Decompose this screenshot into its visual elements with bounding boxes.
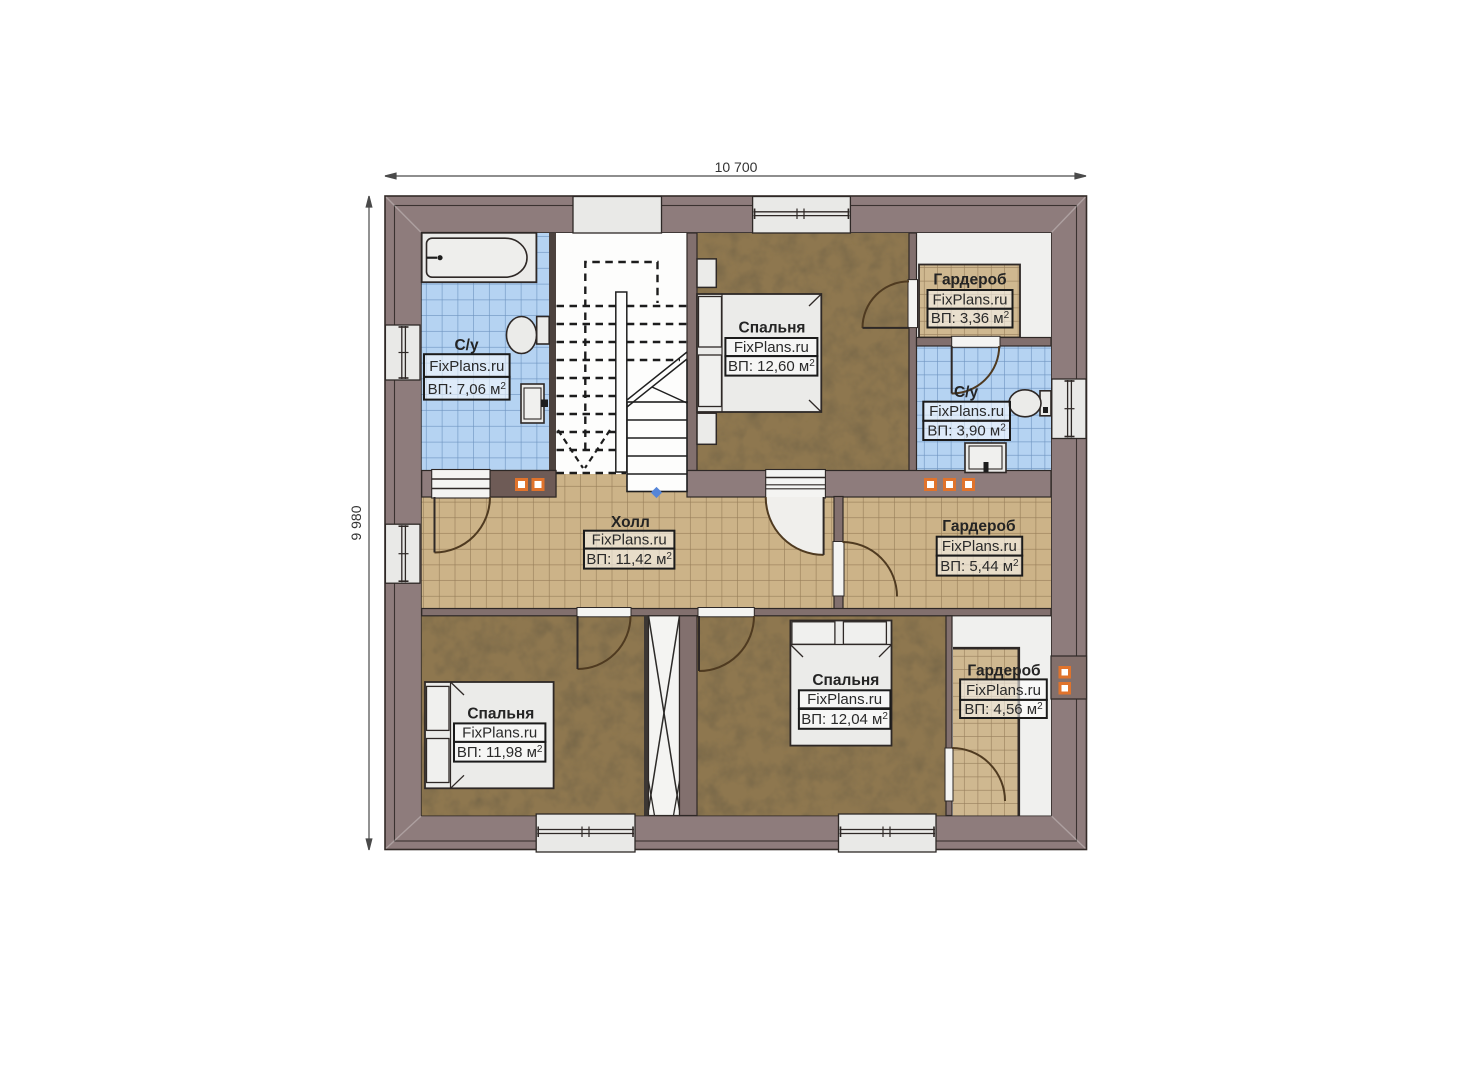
svg-text:FixPlans.ru: FixPlans.ru [429,358,504,375]
svg-text:ВП: 3,36 м2: ВП: 3,36 м2 [931,310,1010,327]
svg-text:ВП: 5,44 м2: ВП: 5,44 м2 [940,558,1019,575]
svg-text:С/у: С/у [954,384,979,401]
svg-text:10 700: 10 700 [715,159,758,175]
svg-text:Гардероб: Гардероб [942,518,1015,535]
svg-text:ВП: 4,56 м2: ВП: 4,56 м2 [964,701,1043,718]
svg-text:ВП: 3,90 м2: ВП: 3,90 м2 [927,422,1006,439]
svg-text:ВП: 12,60 м2: ВП: 12,60 м2 [728,358,815,375]
svg-text:FixPlans.ru: FixPlans.ru [932,291,1007,308]
svg-text:Гардероб: Гардероб [933,272,1006,289]
svg-text:FixPlans.ru: FixPlans.ru [734,339,809,356]
svg-text:Спальня: Спальня [467,706,534,723]
svg-text:FixPlans.ru: FixPlans.ru [966,682,1041,699]
svg-text:FixPlans.ru: FixPlans.ru [929,403,1004,420]
svg-text:FixPlans.ru: FixPlans.ru [462,725,537,742]
svg-text:Спальня: Спальня [739,320,806,337]
svg-text:FixPlans.ru: FixPlans.ru [592,532,667,549]
svg-text:Холл: Холл [611,514,650,531]
svg-text:С/у: С/у [454,337,479,354]
svg-text:FixPlans.ru: FixPlans.ru [807,691,882,708]
svg-text:ВП: 11,98 м2: ВП: 11,98 м2 [457,744,543,761]
svg-text:9 980: 9 980 [348,505,364,540]
svg-text:FixPlans.ru: FixPlans.ru [942,538,1017,555]
svg-text:ВП: 11,42 м2: ВП: 11,42 м2 [586,551,672,568]
svg-text:Гардероб: Гардероб [967,663,1040,680]
svg-text:ВП: 12,04 м2: ВП: 12,04 м2 [801,711,888,728]
svg-text:Спальня: Спальня [812,672,879,689]
svg-text:ВП: 7,06 м2: ВП: 7,06 м2 [428,381,507,398]
